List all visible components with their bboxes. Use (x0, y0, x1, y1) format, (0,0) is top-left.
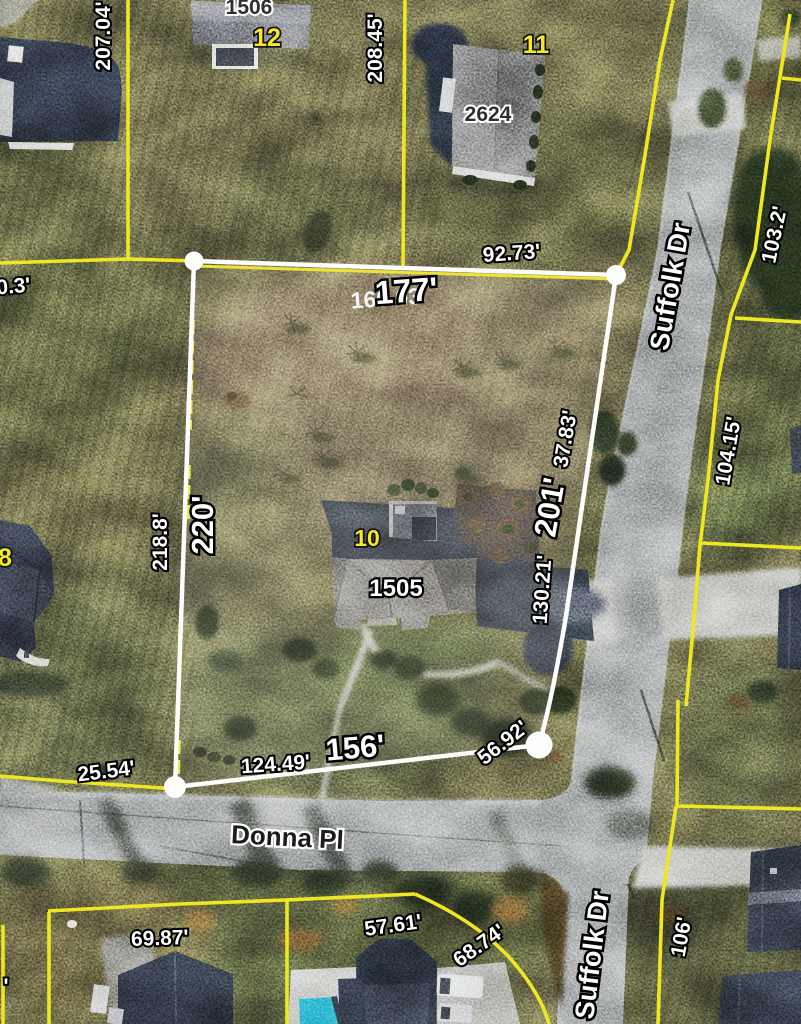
svg-text:0.3': 0.3' (0, 274, 31, 300)
svg-text:177': 177' (374, 270, 439, 311)
svg-text:': ' (4, 975, 9, 998)
svg-text:69.87': 69.87' (131, 926, 189, 951)
svg-text:130.21': 130.21' (529, 554, 557, 625)
svg-text:92.73': 92.73' (482, 240, 541, 267)
svg-text:220': 220' (185, 495, 220, 554)
svg-text:124.49': 124.49' (240, 751, 311, 779)
svg-text:218.8': 218.8' (149, 513, 172, 571)
svg-text:11: 11 (523, 31, 550, 59)
svg-text:208.45': 208.45' (364, 13, 387, 82)
svg-text:Donna Pl: Donna Pl (230, 819, 344, 855)
svg-text:8: 8 (0, 544, 12, 572)
svg-text:156': 156' (324, 728, 386, 768)
svg-text:10: 10 (354, 525, 380, 551)
svg-text:1506: 1506 (226, 0, 273, 19)
svg-text:207.04': 207.04' (92, 1, 115, 70)
svg-text:12: 12 (253, 24, 281, 52)
svg-text:2624: 2624 (465, 103, 512, 126)
svg-text:1505: 1505 (369, 575, 422, 602)
